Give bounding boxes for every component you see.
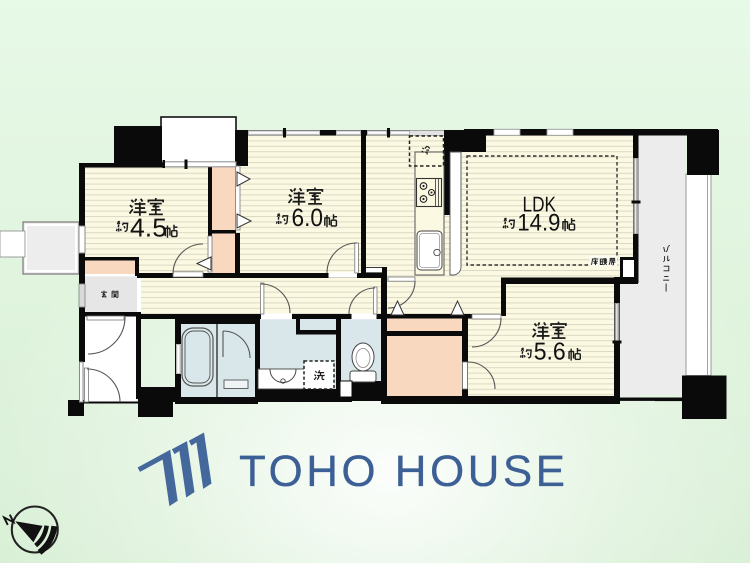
svg-text:TOHO HOUSE: TOHO HOUSE bbox=[239, 447, 565, 496]
svg-text:14.9: 14.9 bbox=[517, 210, 560, 237]
svg-text:4.5: 4.5 bbox=[130, 213, 167, 243]
svg-text:5.6: 5.6 bbox=[534, 338, 566, 365]
svg-text:6.0: 6.0 bbox=[292, 204, 324, 232]
